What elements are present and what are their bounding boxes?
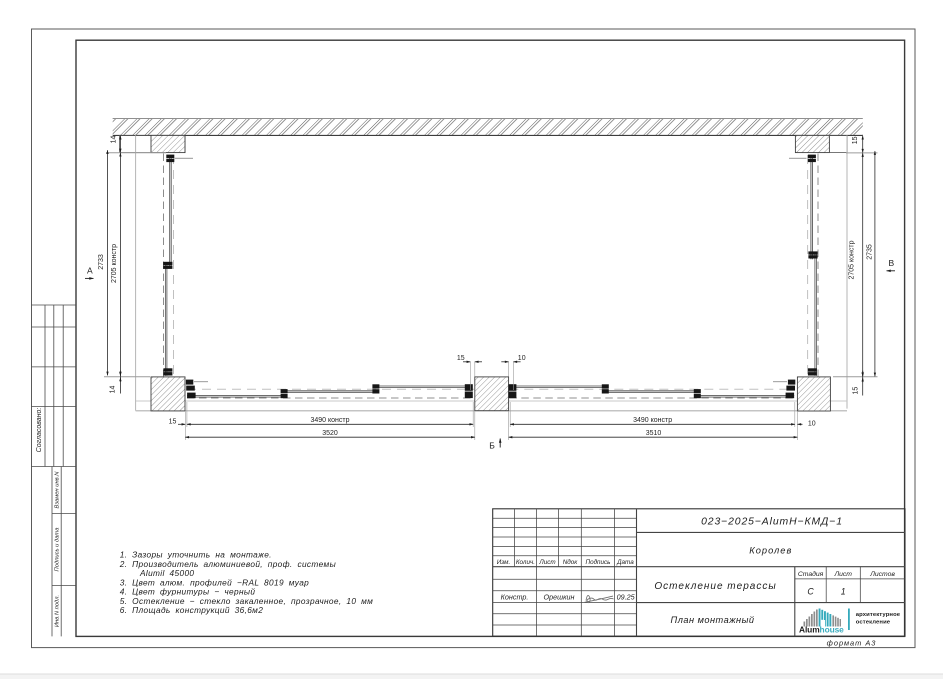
svg-text:Дата: Дата bbox=[616, 559, 634, 566]
svg-text:Взамен инв.N: Взамен инв.N bbox=[55, 471, 61, 509]
svg-text:Колич.: Колич. bbox=[516, 559, 535, 566]
svg-text:14: 14 bbox=[109, 386, 116, 394]
svg-text:Изм.: Изм. bbox=[497, 559, 510, 566]
svg-text:2735: 2735 bbox=[866, 244, 873, 260]
svg-text:10: 10 bbox=[808, 420, 816, 427]
svg-text:Листов: Листов bbox=[869, 571, 895, 578]
svg-text:Согласовано:: Согласовано: bbox=[36, 408, 43, 453]
svg-text:15: 15 bbox=[457, 355, 465, 362]
svg-text:Орешкин: Орешкин bbox=[544, 593, 575, 602]
svg-text:10: 10 bbox=[518, 355, 526, 362]
svg-text:формат А3: формат А3 bbox=[827, 639, 877, 648]
svg-text:В: В bbox=[888, 258, 894, 268]
svg-text:остекление: остекление bbox=[856, 620, 891, 626]
svg-text:15: 15 bbox=[169, 418, 177, 425]
svg-text:Подпись и дата: Подпись и дата bbox=[55, 527, 61, 572]
svg-text:2733: 2733 bbox=[98, 254, 105, 270]
svg-text:План монтажный: План монтажный bbox=[671, 615, 755, 625]
svg-text:Подпись: Подпись bbox=[586, 558, 611, 566]
svg-text:Королев: Королев bbox=[749, 545, 792, 555]
svg-text:6. Площадь конструкций 36,6м: 6. Площадь конструкций 36,6м2 bbox=[120, 605, 264, 615]
svg-text:Nдок: Nдок bbox=[563, 558, 579, 566]
svg-text:023−2025−AlumH−КМД−1: 023−2025−AlumH−КМД−1 bbox=[701, 516, 843, 527]
svg-text:14: 14 bbox=[111, 136, 118, 144]
svg-text:2705 констр: 2705 констр bbox=[111, 244, 118, 283]
svg-text:Б: Б bbox=[489, 441, 495, 451]
svg-text:15: 15 bbox=[852, 136, 859, 144]
svg-text:3490 констр: 3490 констр bbox=[310, 417, 349, 424]
svg-text:С: С bbox=[807, 587, 814, 597]
svg-text:3490 констр: 3490 констр bbox=[633, 417, 672, 424]
svg-text:3510: 3510 bbox=[646, 430, 662, 437]
svg-text:1: 1 bbox=[841, 587, 846, 597]
svg-text:3520: 3520 bbox=[322, 430, 338, 437]
svg-text:архитектурное: архитектурное bbox=[856, 612, 901, 618]
svg-text:Стадия: Стадия bbox=[798, 570, 824, 578]
svg-text:Лист: Лист bbox=[833, 571, 852, 578]
svg-text:Лист: Лист bbox=[538, 559, 555, 566]
svg-text:2705 констр: 2705 констр bbox=[848, 240, 855, 279]
svg-text:Инв.N подл.: Инв.N подл. bbox=[55, 595, 61, 627]
svg-text:15: 15 bbox=[852, 387, 859, 395]
svg-text:Констр.: Констр. bbox=[501, 593, 529, 602]
svg-text:А: А bbox=[87, 266, 93, 276]
svg-text:Alumhouse: Alumhouse bbox=[799, 625, 844, 635]
svg-text:09.25: 09.25 bbox=[617, 593, 636, 602]
svg-text:Остекление терассы: Остекление терассы bbox=[654, 581, 776, 592]
